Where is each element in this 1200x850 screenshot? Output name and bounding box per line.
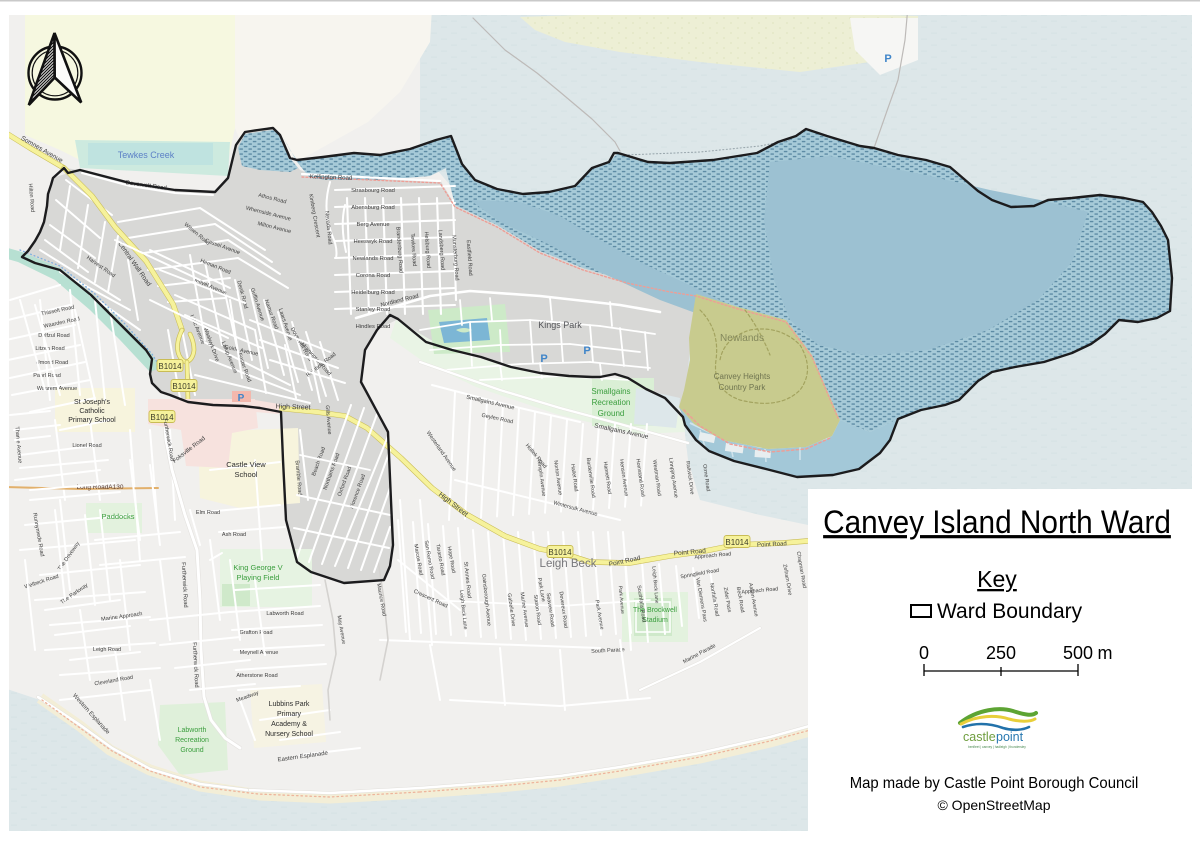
svg-text:Hindles Road: Hindles Road (356, 324, 391, 330)
svg-text:Canvey Island North Ward: Canvey Island North Ward (823, 504, 1171, 540)
svg-text:Labworth: Labworth (178, 727, 207, 734)
svg-text:Ward Boundary: Ward Boundary (937, 600, 1083, 623)
svg-text:Abensburg Road: Abensburg Road (351, 205, 395, 211)
svg-text:Map made by Castle Point Borou: Map made by Castle Point Borough Council (850, 775, 1139, 792)
svg-text:Labworth Road: Labworth Road (266, 611, 303, 617)
svg-text:Lionel Road: Lionel Road (72, 443, 101, 449)
svg-text:B1014: B1014 (158, 362, 182, 371)
svg-text:High Street: High Street (275, 403, 310, 411)
svg-text:Castle View: Castle View (226, 460, 266, 469)
svg-text:P: P (238, 393, 245, 404)
svg-text:Grafton Road: Grafton Road (239, 630, 272, 636)
svg-text:Primary School: Primary School (68, 417, 116, 424)
svg-text:Newlands: Newlands (720, 333, 764, 344)
svg-text:Atherstone Road: Atherstone Road (236, 673, 277, 679)
svg-text:250: 250 (986, 643, 1016, 663)
svg-text:Nursery School: Nursery School (265, 731, 313, 738)
svg-text:m: m (1098, 643, 1113, 663)
svg-text:Elm Road: Elm Road (196, 510, 220, 516)
svg-text:B1014: B1014 (172, 382, 196, 391)
svg-text:Litzen Road: Litzen Road (35, 346, 64, 352)
svg-text:Ground: Ground (598, 409, 625, 418)
svg-text:Playing Field: Playing Field (237, 573, 280, 582)
svg-text:Kings Park: Kings Park (538, 320, 582, 330)
svg-text:Recreation: Recreation (592, 398, 631, 407)
svg-text:Strasbourg Road: Strasbourg Road (351, 188, 395, 194)
svg-text:Primary: Primary (277, 711, 302, 718)
svg-text:Tewkes Creek: Tewkes Creek (118, 150, 175, 160)
svg-text:Country Park: Country Park (719, 383, 767, 392)
svg-text:King George V: King George V (233, 563, 282, 572)
svg-text:Paarl Road: Paarl Road (33, 373, 61, 379)
svg-text:Stanley Road: Stanley Road (356, 307, 391, 313)
svg-text:Ground: Ground (180, 747, 203, 754)
svg-text:point: point (996, 730, 1024, 744)
svg-text:School: School (235, 470, 258, 479)
svg-text:Key: Key (977, 566, 1017, 592)
svg-text:Recreation: Recreation (175, 737, 209, 744)
svg-text:Newlands Road: Newlands Road (353, 256, 394, 262)
svg-text:Academy &: Academy & (271, 721, 307, 728)
svg-text:P: P (884, 53, 891, 65)
svg-text:Heidelburg Road: Heidelburg Road (351, 290, 395, 296)
svg-text:Ash Road: Ash Road (222, 532, 246, 538)
svg-text:500: 500 (1063, 643, 1093, 663)
svg-text:Canvey Heights: Canvey Heights (714, 372, 770, 381)
svg-text:castle: castle (963, 730, 996, 744)
svg-text:Leigh Beck: Leigh Beck (540, 558, 597, 570)
svg-text:Catholic: Catholic (79, 408, 105, 415)
svg-text:P: P (583, 345, 590, 357)
svg-text:Lubbins Park: Lubbins Park (269, 701, 310, 708)
svg-text:B1014: B1014 (725, 538, 749, 547)
svg-text:© OpenStreetMap: © OpenStreetMap (937, 797, 1050, 813)
svg-text:0: 0 (919, 643, 929, 663)
svg-text:P: P (540, 353, 547, 365)
svg-text:Meynell Avenue: Meynell Avenue (240, 650, 279, 656)
svg-text:B1014: B1014 (548, 548, 572, 557)
svg-text:Corona Road: Corona Road (356, 273, 390, 279)
svg-text:benfleet | canvey | hadleigh |: benfleet | canvey | hadleigh | thundersl… (968, 745, 1026, 749)
svg-text:Leigh Road: Leigh Road (93, 647, 121, 653)
svg-text:Smallgains: Smallgains (591, 387, 630, 396)
svg-text:Heeswyk Road: Heeswyk Road (354, 239, 393, 245)
svg-text:Paddocks: Paddocks (102, 512, 135, 521)
svg-text:Berg Avenue: Berg Avenue (356, 222, 389, 228)
svg-text:St Joseph's: St Joseph's (74, 399, 110, 406)
